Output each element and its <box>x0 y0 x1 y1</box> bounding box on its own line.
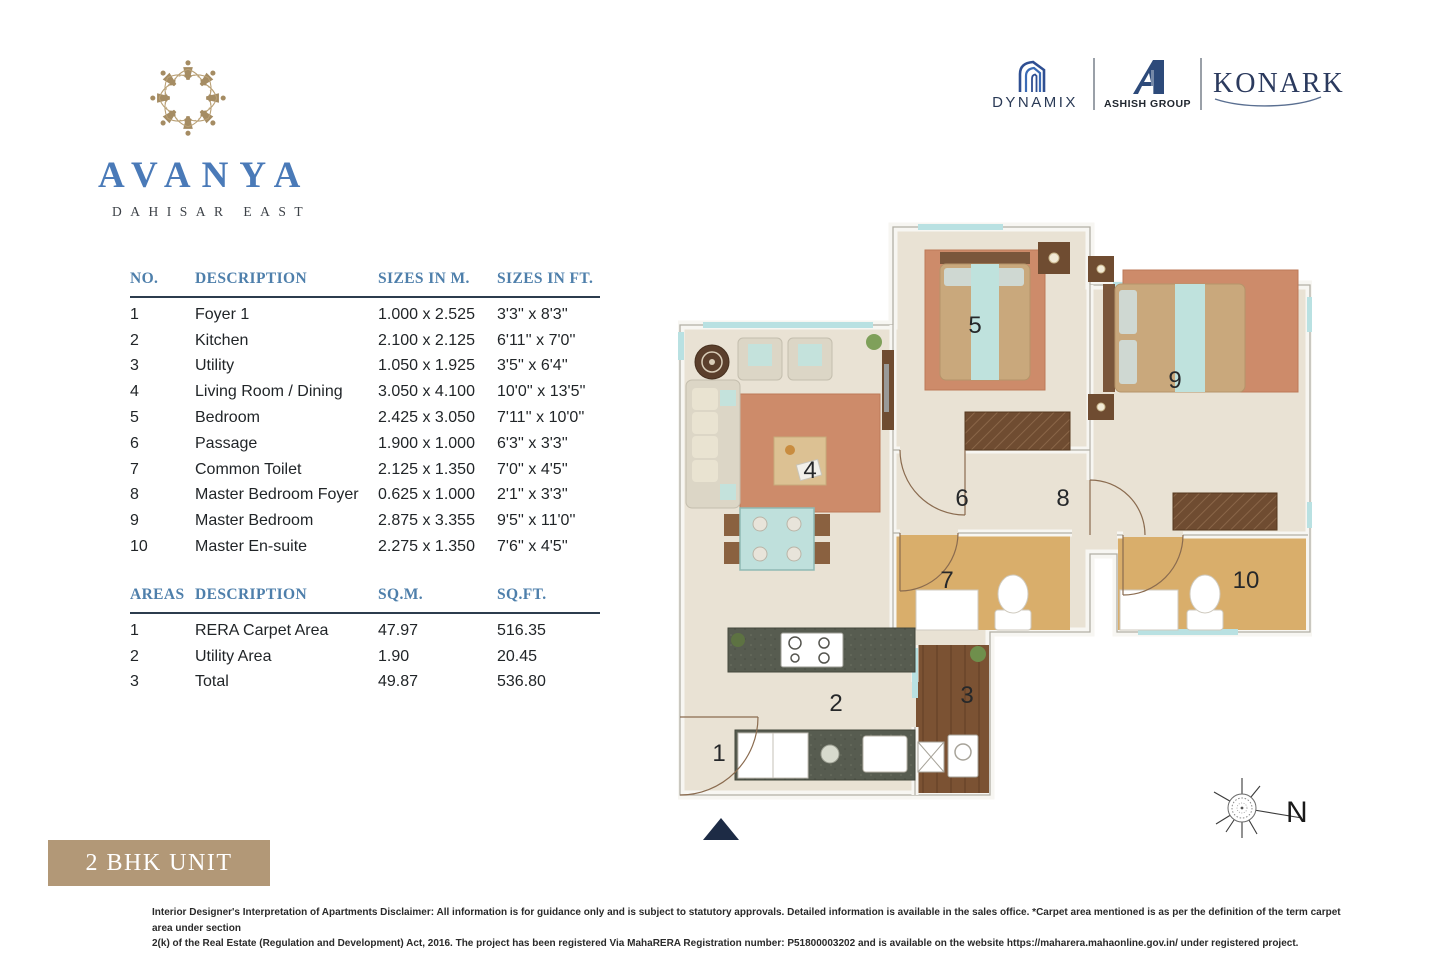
cell: 20.45 <box>497 648 600 666</box>
cell: 3.050 x 4.100 <box>378 383 497 401</box>
cell: Master Bedroom <box>195 512 378 530</box>
dynamix-icon <box>1014 58 1056 94</box>
table-row: 6 Passage 1.900 x 1.000 6'3'' x 3'3'' <box>130 431 600 457</box>
plant <box>970 646 986 662</box>
disclaimer-text: Interior Designer's Interpretation of Ap… <box>152 905 1352 952</box>
dining-table <box>740 508 814 570</box>
room-label-2: 2 <box>829 690 842 717</box>
room-label-9: 9 <box>1168 367 1181 394</box>
areas-table: AREAS DESCRIPTION SQ.M. SQ.FT. 1 RERA Ca… <box>130 586 600 695</box>
divider <box>1200 58 1202 110</box>
ashish-group-label: ASHISH GROUP <box>1100 98 1195 110</box>
cell: 3'3'' x 8'3'' <box>497 306 600 324</box>
table-row: 10 Master En-suite 2.275 x 1.350 7'6'' x… <box>130 534 600 560</box>
table-row: 2 Utility Area 1.90 20.45 <box>130 644 600 670</box>
cell: 1 <box>130 306 195 324</box>
room-label-5: 5 <box>968 312 981 339</box>
plant <box>731 633 745 647</box>
plant <box>866 334 882 350</box>
toilet <box>995 575 1031 630</box>
col-header: SIZES IN FT. <box>497 270 600 288</box>
table-row: 3 Utility 1.050 x 1.925 3'5'' x 6'4'' <box>130 354 600 380</box>
table-row: 3 Total 49.87 536.80 <box>130 670 600 696</box>
compass-north-label: N <box>1286 796 1308 830</box>
cell: Utility <box>195 357 378 375</box>
table-row: 4 Living Room / Dining 3.050 x 4.100 10'… <box>130 379 600 405</box>
washing-machine <box>948 735 978 777</box>
cell: Kitchen <box>195 332 378 350</box>
table-row: 8 Master Bedroom Foyer 0.625 x 1.000 2'1… <box>130 483 600 509</box>
room-label-7: 7 <box>940 567 953 594</box>
cell: 6'3'' x 3'3'' <box>497 435 600 453</box>
room-label-8: 8 <box>1056 485 1069 512</box>
project-location: DAHISAR EAST <box>112 204 311 220</box>
disclaimer-lead: Interior Designer's Interpretation of Ap… <box>152 907 434 918</box>
sofa <box>686 380 740 508</box>
cell: Master Bedroom Foyer <box>195 486 378 504</box>
cell: 1.900 x 1.000 <box>378 435 497 453</box>
cell: 7'0'' x 4'5'' <box>497 461 600 479</box>
room-label-6: 6 <box>955 485 968 512</box>
cell: 2.275 x 1.350 <box>378 538 497 556</box>
nightstand <box>1088 256 1114 282</box>
col-header: SQ.M. <box>378 586 497 604</box>
project-title: AVANYA <box>98 154 298 197</box>
cell: 47.97 <box>378 622 497 640</box>
cell: 1.000 x 2.525 <box>378 306 497 324</box>
cell: 2'1'' x 3'3'' <box>497 486 600 504</box>
cell: 2 <box>130 332 195 350</box>
cell: 8 <box>130 486 195 504</box>
partner-logos: DYNAMIX ASHISH GROUP KONARK <box>985 52 1325 122</box>
room-label-4: 4 <box>803 457 816 484</box>
table-row: 7 Common Toilet 2.125 x 1.350 7'0'' x 4'… <box>130 457 600 483</box>
cell: RERA Carpet Area <box>195 622 378 640</box>
ashish-group-icon <box>1127 58 1171 96</box>
divider <box>1093 58 1095 110</box>
cell: Utility Area <box>195 648 378 666</box>
cell: Common Toilet <box>195 461 378 479</box>
nightstand <box>1038 242 1070 274</box>
disclaimer-line2: 2(k) of the Real Estate (Regulation and … <box>152 938 1298 949</box>
dimensions-table-header: NO. DESCRIPTION SIZES IN M. SIZES IN FT. <box>130 270 600 298</box>
stove <box>781 633 843 667</box>
floor-plan: 1 2 3 4 5 6 7 8 9 10 <box>678 222 1312 802</box>
cell: 6'11'' x 7'0'' <box>497 332 600 350</box>
cell: 7'11'' x 10'0'' <box>497 409 600 427</box>
dining-set <box>724 508 830 570</box>
toilet <box>1187 575 1223 630</box>
cell: Foyer 1 <box>195 306 378 324</box>
cell: 516.35 <box>497 622 600 640</box>
cell: 1.90 <box>378 648 497 666</box>
cell: 3'5'' x 6'4'' <box>497 357 600 375</box>
armchair <box>738 338 782 380</box>
basin <box>863 736 907 772</box>
table-row: 9 Master Bedroom 2.875 x 3.355 9'5'' x 1… <box>130 508 600 534</box>
cell: Bedroom <box>195 409 378 427</box>
cell: 10 <box>130 538 195 556</box>
col-header: SIZES IN M. <box>378 270 497 288</box>
room-label-3: 3 <box>960 682 973 709</box>
room-label-1: 1 <box>712 740 725 767</box>
cell: 9'5'' x 11'0'' <box>497 512 600 530</box>
cell: 1 <box>130 622 195 640</box>
vanity <box>1120 590 1178 630</box>
cell: 4 <box>130 383 195 401</box>
unit-type-label: 2 BHK UNIT <box>86 850 233 877</box>
side-table <box>695 345 729 379</box>
cell: Passage <box>195 435 378 453</box>
cell: 6 <box>130 435 195 453</box>
cell: 536.80 <box>497 673 600 691</box>
areas-table-header: AREAS DESCRIPTION SQ.M. SQ.FT. <box>130 586 600 614</box>
konark-swoosh <box>1213 96 1323 110</box>
wardrobe <box>1173 493 1277 530</box>
cell: 2.125 x 1.350 <box>378 461 497 479</box>
cell: 2.425 x 3.050 <box>378 409 497 427</box>
col-header: AREAS <box>130 586 195 604</box>
col-header: DESCRIPTION <box>195 586 378 604</box>
cell: 7 <box>130 461 195 479</box>
cell: 49.87 <box>378 673 497 691</box>
cell: 3 <box>130 357 195 375</box>
cell: 2.875 x 3.355 <box>378 512 497 530</box>
col-header: DESCRIPTION <box>195 270 378 288</box>
cell: Living Room / Dining <box>195 383 378 401</box>
col-header: NO. <box>130 270 195 288</box>
table-row: 1 Foyer 1 1.000 x 2.525 3'3'' x 8'3'' <box>130 302 600 328</box>
sink <box>821 745 839 763</box>
tv-unit <box>882 350 894 430</box>
cell: 3 <box>130 673 195 691</box>
cell: 9 <box>130 512 195 530</box>
dimensions-table: NO. DESCRIPTION SIZES IN M. SIZES IN FT.… <box>130 270 600 560</box>
nightstand <box>1088 394 1114 420</box>
wardrobe <box>965 412 1070 450</box>
vanity <box>916 590 978 630</box>
table-row: 1 RERA Carpet Area 47.97 516.35 <box>130 618 600 644</box>
cell: 2.100 x 2.125 <box>378 332 497 350</box>
cell: 5 <box>130 409 195 427</box>
bed <box>940 252 1030 380</box>
table-row: 2 Kitchen 2.100 x 2.125 6'11'' x 7'0'' <box>130 328 600 354</box>
cell: Master En-suite <box>195 538 378 556</box>
cell: Total <box>195 673 378 691</box>
avanya-mandala-logo <box>140 50 236 146</box>
cell: 1.050 x 1.925 <box>378 357 497 375</box>
room-label-10: 10 <box>1233 567 1260 594</box>
dynamix-label: DYNAMIX <box>985 94 1085 111</box>
armchair <box>788 338 832 380</box>
unit-type-badge: 2 BHK UNIT <box>48 840 270 886</box>
entry-marker-icon <box>703 818 739 840</box>
col-header: SQ.FT. <box>497 586 600 604</box>
brochure-page: AVANYA DAHISAR EAST DYNAMIX ASHISH GROUP… <box>0 0 1440 970</box>
cell: 10'0'' x 13'5'' <box>497 383 600 401</box>
table-row: 5 Bedroom 2.425 x 3.050 7'11'' x 10'0'' <box>130 405 600 431</box>
cell: 0.625 x 1.000 <box>378 486 497 504</box>
dimensions-table-body: 1 Foyer 1 1.000 x 2.525 3'3'' x 8'3'' 2 … <box>130 298 600 560</box>
cell: 7'6'' x 4'5'' <box>497 538 600 556</box>
areas-table-body: 1 RERA Carpet Area 47.97 516.35 2 Utilit… <box>130 614 600 695</box>
cell: 2 <box>130 648 195 666</box>
